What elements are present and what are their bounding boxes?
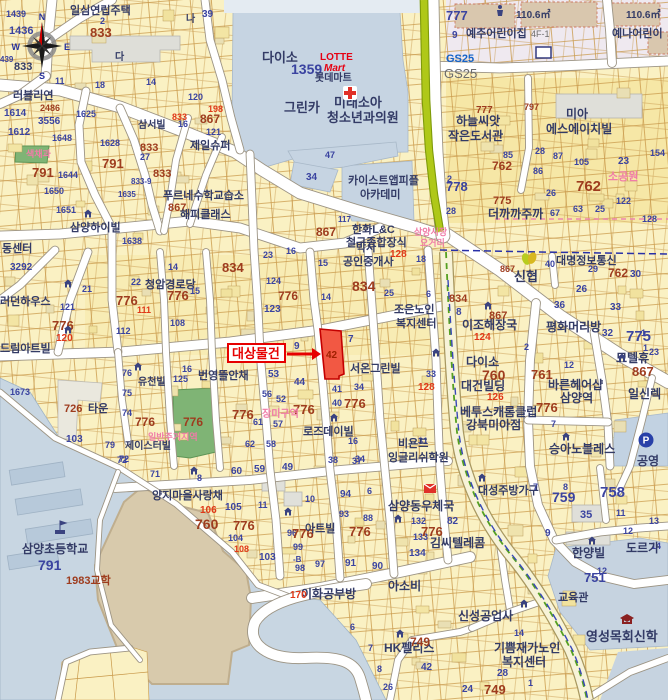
svg-text:1: 1 <box>641 328 646 338</box>
svg-text:91: 91 <box>345 558 357 569</box>
svg-text:15: 15 <box>318 258 328 268</box>
svg-text:대건빌딩: 대건빌딩 <box>461 378 505 393</box>
svg-text:다: 다 <box>115 50 125 63</box>
svg-text:1673: 1673 <box>10 387 30 397</box>
svg-text:834: 834 <box>449 293 468 305</box>
svg-text:797: 797 <box>524 102 539 112</box>
svg-text:푸르네수학교습소: 푸르네수학교습소 <box>163 188 244 202</box>
svg-text:GS25: GS25 <box>444 66 477 81</box>
svg-text:오거리: 오거리 <box>420 237 445 248</box>
svg-text:90: 90 <box>372 561 384 572</box>
svg-text:6: 6 <box>426 289 431 299</box>
svg-text:삼양초등학교: 삼양초등학교 <box>22 541 88 556</box>
svg-text:75: 75 <box>122 388 132 398</box>
svg-text:W: W <box>12 42 21 52</box>
svg-text:126: 126 <box>487 392 504 403</box>
svg-text:15: 15 <box>190 286 200 296</box>
svg-text:12: 12 <box>564 360 574 370</box>
svg-text:833: 833 <box>14 61 32 73</box>
svg-text:더까까주까: 더까까주까 <box>488 206 543 221</box>
svg-text:776: 776 <box>278 289 298 303</box>
svg-text:762: 762 <box>492 159 512 173</box>
svg-text:108: 108 <box>234 544 249 554</box>
svg-text:154: 154 <box>650 148 665 158</box>
svg-text:776: 776 <box>232 407 254 422</box>
svg-text:28: 28 <box>497 668 509 679</box>
svg-text:99: 99 <box>293 542 303 552</box>
svg-text:53: 53 <box>268 369 280 380</box>
svg-text:공영: 공영 <box>637 453 659 468</box>
svg-text:청소년과의원: 청소년과의원 <box>327 110 399 125</box>
svg-text:776: 776 <box>349 524 371 539</box>
svg-text:833-9: 833-9 <box>131 177 152 186</box>
svg-text:775: 775 <box>493 195 511 207</box>
svg-text:791: 791 <box>32 165 54 180</box>
svg-text:GS25: GS25 <box>446 53 474 65</box>
svg-text:6: 6 <box>350 622 355 632</box>
svg-text:112: 112 <box>116 326 131 336</box>
svg-text:2486: 2486 <box>40 103 60 113</box>
svg-text:98: 98 <box>295 563 305 573</box>
svg-text:791: 791 <box>102 156 124 171</box>
svg-text:124: 124 <box>266 276 281 286</box>
svg-text:776: 776 <box>233 518 255 533</box>
svg-text:23: 23 <box>618 156 630 167</box>
svg-text:8: 8 <box>563 482 568 492</box>
svg-text:러던하우스: 러던하우스 <box>0 294 51 308</box>
svg-text:59: 59 <box>254 464 266 475</box>
svg-text:14: 14 <box>146 77 156 87</box>
svg-text:P: P <box>643 436 650 447</box>
svg-text:8: 8 <box>456 307 462 318</box>
svg-text:LOTTE: LOTTE <box>320 52 353 63</box>
svg-text:58: 58 <box>266 439 276 449</box>
svg-text:833: 833 <box>153 168 171 180</box>
svg-text:7: 7 <box>533 482 538 492</box>
svg-text:1614: 1614 <box>4 108 27 119</box>
svg-text:749: 749 <box>484 682 506 697</box>
svg-text:47: 47 <box>325 150 335 160</box>
svg-text:1635: 1635 <box>118 190 136 199</box>
svg-text:공인중개사: 공인중개사 <box>343 254 394 268</box>
svg-text:S: S <box>39 71 45 81</box>
svg-text:그린카: 그린카 <box>284 100 320 115</box>
svg-text:38: 38 <box>328 455 338 465</box>
svg-text:한양빌: 한양빌 <box>572 545 605 560</box>
svg-text:88: 88 <box>363 513 373 523</box>
svg-text:60: 60 <box>231 466 243 477</box>
svg-text:9: 9 <box>294 341 300 352</box>
svg-text:번영뜰안채: 번영뜰안채 <box>198 368 249 382</box>
svg-text:34: 34 <box>306 172 318 183</box>
svg-text:서온그린빌: 서온그린빌 <box>350 361 401 375</box>
svg-text:42: 42 <box>326 350 338 361</box>
svg-text:749: 749 <box>410 635 430 649</box>
svg-text:6: 6 <box>367 486 372 496</box>
svg-text:영성목회신학: 영성목회신학 <box>586 629 658 644</box>
svg-text:123: 123 <box>264 304 281 315</box>
svg-text:85: 85 <box>503 150 513 160</box>
svg-text:758: 758 <box>600 484 625 501</box>
svg-text:128: 128 <box>642 214 657 224</box>
svg-text:87: 87 <box>553 151 563 161</box>
svg-text:바른헤어샵: 바른헤어샵 <box>548 377 603 392</box>
svg-text:40: 40 <box>332 398 342 408</box>
svg-text:1651: 1651 <box>56 205 76 215</box>
svg-text:106: 106 <box>200 505 217 516</box>
svg-text:33: 33 <box>610 302 622 313</box>
svg-text:134: 134 <box>409 548 426 559</box>
svg-text:104: 104 <box>228 533 243 543</box>
svg-text:120: 120 <box>56 333 73 344</box>
svg-text:762: 762 <box>608 266 628 280</box>
svg-text:867: 867 <box>500 264 515 274</box>
svg-text:1648: 1648 <box>52 133 72 143</box>
svg-text:11: 11 <box>616 508 626 518</box>
svg-text:18: 18 <box>95 80 105 90</box>
svg-text:124: 124 <box>474 332 491 343</box>
svg-text:아카데미: 아카데미 <box>360 187 400 201</box>
svg-text:94: 94 <box>340 489 352 500</box>
svg-text:일심연립주택: 일심연립주택 <box>70 3 131 17</box>
svg-text:122: 122 <box>616 196 631 206</box>
svg-text:72: 72 <box>117 455 127 465</box>
svg-text:791: 791 <box>38 557 62 573</box>
svg-text:1983교학: 1983교학 <box>66 573 111 587</box>
svg-text:867: 867 <box>632 364 654 379</box>
svg-text:11: 11 <box>258 500 268 510</box>
svg-text:18: 18 <box>416 254 426 264</box>
svg-text:57: 57 <box>273 419 283 429</box>
svg-text:예나어린이: 예나어린이 <box>612 26 663 40</box>
svg-text:120: 120 <box>188 92 203 102</box>
svg-text:삼양시장: 삼양시장 <box>414 226 448 237</box>
svg-text:11: 11 <box>55 76 65 86</box>
svg-text:카이스트앱피플: 카이스트앱피플 <box>348 173 419 187</box>
svg-text:해피클래스: 해피클래스 <box>180 207 231 221</box>
svg-text:25: 25 <box>595 204 605 214</box>
svg-text:아소비: 아소비 <box>388 578 421 593</box>
svg-text:25: 25 <box>384 288 394 298</box>
svg-text:26: 26 <box>546 188 556 198</box>
svg-text:베투스캐롬클럽: 베투스캐롬클럽 <box>460 404 537 419</box>
svg-text:아트빌: 아트빌 <box>305 521 335 535</box>
svg-text:7: 7 <box>348 334 354 345</box>
svg-text:타운: 타운 <box>88 401 108 415</box>
svg-text:1439: 1439 <box>6 9 26 19</box>
svg-text:777: 777 <box>476 105 493 116</box>
svg-text:23: 23 <box>649 347 659 357</box>
svg-text:강북미아점: 강북미아점 <box>466 417 521 432</box>
svg-text:비욘드: 비욘드 <box>398 436 428 450</box>
svg-text:평화머리방: 평화머리방 <box>546 319 601 334</box>
svg-text:28: 28 <box>535 146 545 156</box>
svg-text:39: 39 <box>202 9 214 20</box>
svg-text:170: 170 <box>290 590 307 601</box>
svg-text:27: 27 <box>140 152 150 162</box>
svg-text:1638: 1638 <box>122 236 142 246</box>
svg-text:42: 42 <box>421 662 433 673</box>
svg-text:로즈데이빌: 로즈데이빌 <box>303 424 354 438</box>
svg-text:16: 16 <box>182 364 192 374</box>
svg-text:대성주방가구: 대성주방가구 <box>478 483 539 497</box>
svg-text:러블리연: 러블리연 <box>13 88 53 102</box>
svg-text:726: 726 <box>64 403 82 415</box>
svg-text:103: 103 <box>66 434 83 445</box>
svg-text:93: 93 <box>339 509 349 519</box>
svg-text:일반주거지역: 일반주거지역 <box>148 431 198 442</box>
svg-text:N: N <box>39 12 46 22</box>
svg-text:834: 834 <box>222 260 244 275</box>
svg-text:37: 37 <box>352 456 362 466</box>
svg-text:776: 776 <box>116 293 138 308</box>
svg-text:762: 762 <box>576 178 601 195</box>
svg-text:36: 36 <box>554 300 566 311</box>
svg-text:105: 105 <box>574 157 589 167</box>
svg-text:16: 16 <box>286 246 296 256</box>
svg-text:1628: 1628 <box>100 138 120 148</box>
svg-text:82: 82 <box>447 516 459 527</box>
svg-text:미래소아: 미래소아 <box>334 95 382 110</box>
svg-text:29: 29 <box>588 264 598 274</box>
svg-text:일신렉: 일신렉 <box>628 386 661 401</box>
svg-text:52: 52 <box>276 394 286 404</box>
svg-text:7: 7 <box>368 643 373 653</box>
svg-text:삼양동우체국: 삼양동우체국 <box>388 498 454 513</box>
svg-text:미아: 미아 <box>566 106 588 121</box>
svg-text:778: 778 <box>446 179 468 194</box>
svg-text:76: 76 <box>122 368 132 378</box>
svg-text:1650: 1650 <box>44 186 64 196</box>
svg-text:121: 121 <box>206 127 221 137</box>
svg-text:833: 833 <box>172 112 187 122</box>
svg-text:26: 26 <box>383 682 393 692</box>
svg-text:삼양역: 삼양역 <box>560 390 593 405</box>
svg-text:소공원: 소공원 <box>608 169 638 183</box>
svg-text:삼서빌: 삼서빌 <box>138 118 166 131</box>
svg-text:776: 776 <box>135 415 155 429</box>
svg-text:작은도서관: 작은도서관 <box>448 128 503 143</box>
svg-text:4F-1: 4F-1 <box>531 29 550 39</box>
svg-text:40: 40 <box>545 259 555 269</box>
svg-text:삼양하이빌: 삼양하이빌 <box>70 220 121 234</box>
svg-text:12: 12 <box>597 566 607 576</box>
svg-text:12: 12 <box>623 526 633 536</box>
svg-text:103: 103 <box>259 552 276 563</box>
svg-text:드림아트빌: 드림아트빌 <box>0 341 51 355</box>
svg-text:9: 9 <box>545 528 551 539</box>
svg-text:8: 8 <box>197 473 202 483</box>
svg-text:117: 117 <box>338 215 351 224</box>
svg-text:장미구역: 장미구역 <box>262 407 299 420</box>
svg-text:22: 22 <box>131 277 141 287</box>
svg-text:56: 56 <box>262 389 272 399</box>
svg-text:125: 125 <box>173 374 188 384</box>
svg-text:13: 13 <box>649 516 659 526</box>
svg-text:2: 2 <box>524 342 529 352</box>
svg-text:색채과: 색채과 <box>26 148 52 159</box>
svg-text:16: 16 <box>348 436 358 446</box>
svg-text:대명정보통신: 대명정보통신 <box>556 253 617 267</box>
svg-text:1436: 1436 <box>9 25 33 37</box>
svg-text:121: 121 <box>60 302 75 312</box>
svg-text:제일슈퍼: 제일슈퍼 <box>190 138 230 152</box>
svg-text:3556: 3556 <box>38 116 61 127</box>
svg-text:833: 833 <box>90 25 112 40</box>
svg-text:32: 32 <box>602 328 614 339</box>
svg-text:776: 776 <box>344 396 366 411</box>
svg-text:E: E <box>64 42 70 52</box>
svg-text:110.6㎡: 110.6㎡ <box>626 8 660 21</box>
svg-text:예주어린이집: 예주어린이집 <box>466 26 527 40</box>
svg-text:62: 62 <box>245 439 255 449</box>
svg-text:9: 9 <box>452 30 458 41</box>
svg-text:63: 63 <box>573 204 583 214</box>
svg-text:교육관: 교육관 <box>558 590 588 604</box>
svg-text:3292: 3292 <box>10 262 33 273</box>
svg-text:양지마을사랑채: 양지마을사랑채 <box>152 488 223 502</box>
svg-text:철구종합장식: 철구종합장식 <box>346 235 407 249</box>
svg-text:777: 777 <box>446 8 468 23</box>
svg-text:439: 439 <box>0 55 14 64</box>
svg-text:111: 111 <box>137 305 151 315</box>
svg-text:776: 776 <box>183 415 203 429</box>
svg-text:834: 834 <box>352 278 376 294</box>
svg-text:776: 776 <box>421 524 443 539</box>
svg-text:41: 41 <box>332 384 342 394</box>
svg-text:26: 26 <box>576 284 588 295</box>
svg-text:1644: 1644 <box>58 170 78 180</box>
svg-text:776: 776 <box>167 288 189 303</box>
svg-text:나: 나 <box>186 12 196 25</box>
svg-text:97: 97 <box>315 559 325 569</box>
svg-text:74: 74 <box>122 408 132 418</box>
svg-text:71: 71 <box>150 469 160 479</box>
svg-text:7: 7 <box>551 419 556 429</box>
svg-text:21: 21 <box>82 284 92 294</box>
svg-text:14: 14 <box>321 292 331 302</box>
svg-text:Mart: Mart <box>324 63 346 74</box>
svg-text:110.6㎡: 110.6㎡ <box>516 8 550 21</box>
svg-text:44: 44 <box>294 377 306 388</box>
svg-text:128: 128 <box>390 249 407 260</box>
svg-text:이조해장국: 이조해장국 <box>462 317 517 332</box>
svg-text:복지센터: 복지센터 <box>502 654 546 669</box>
svg-text:10: 10 <box>305 494 315 504</box>
svg-text:67: 67 <box>550 208 560 218</box>
svg-text:이화공부방: 이화공부방 <box>301 586 356 601</box>
svg-text:30: 30 <box>630 269 642 280</box>
svg-text:복지센터: 복지센터 <box>396 316 436 330</box>
svg-text:1612: 1612 <box>8 127 31 138</box>
svg-text:14: 14 <box>168 262 178 272</box>
svg-text:776: 776 <box>536 400 558 415</box>
svg-text:867: 867 <box>316 225 336 239</box>
svg-text:86: 86 <box>533 166 543 176</box>
svg-text:1: 1 <box>528 678 533 688</box>
svg-text:867: 867 <box>200 112 220 126</box>
svg-text:도르가: 도르가 <box>626 540 659 555</box>
svg-text:동센터: 동센터 <box>2 241 32 255</box>
svg-text:49: 49 <box>282 462 294 473</box>
svg-text:760: 760 <box>195 516 219 532</box>
svg-text:대상물건: 대상물건 <box>232 346 280 361</box>
svg-text:에스에이치빌: 에스에이치빌 <box>546 121 612 136</box>
svg-text:79: 79 <box>105 440 115 450</box>
svg-text:105: 105 <box>225 502 242 513</box>
svg-text:33: 33 <box>426 369 436 379</box>
svg-text:35: 35 <box>580 509 592 521</box>
svg-text:24: 24 <box>462 684 474 695</box>
svg-text:신협: 신협 <box>514 269 538 284</box>
svg-text:23: 23 <box>263 250 273 260</box>
svg-text:1625: 1625 <box>76 109 96 119</box>
svg-text:128: 128 <box>418 382 435 393</box>
svg-text:28: 28 <box>446 206 456 216</box>
svg-text:14: 14 <box>514 628 524 638</box>
svg-text:한화L&C: 한화L&C <box>352 222 395 236</box>
svg-text:유천빌: 유천빌 <box>138 375 166 388</box>
svg-text:잉글리쉬학원: 잉글리쉬학원 <box>388 450 449 464</box>
svg-text:34: 34 <box>354 382 364 392</box>
svg-text:신성공업사: 신성공업사 <box>458 608 513 623</box>
svg-text:1: 1 <box>643 343 648 353</box>
svg-text:8: 8 <box>377 664 382 674</box>
svg-text:기쁨재가노인: 기쁨재가노인 <box>494 640 560 655</box>
svg-text:198: 198 <box>208 104 223 114</box>
svg-text:승아노블레스: 승아노블레스 <box>549 441 615 456</box>
svg-text:조은노인: 조은노인 <box>394 302 434 316</box>
svg-text:108: 108 <box>170 318 185 328</box>
